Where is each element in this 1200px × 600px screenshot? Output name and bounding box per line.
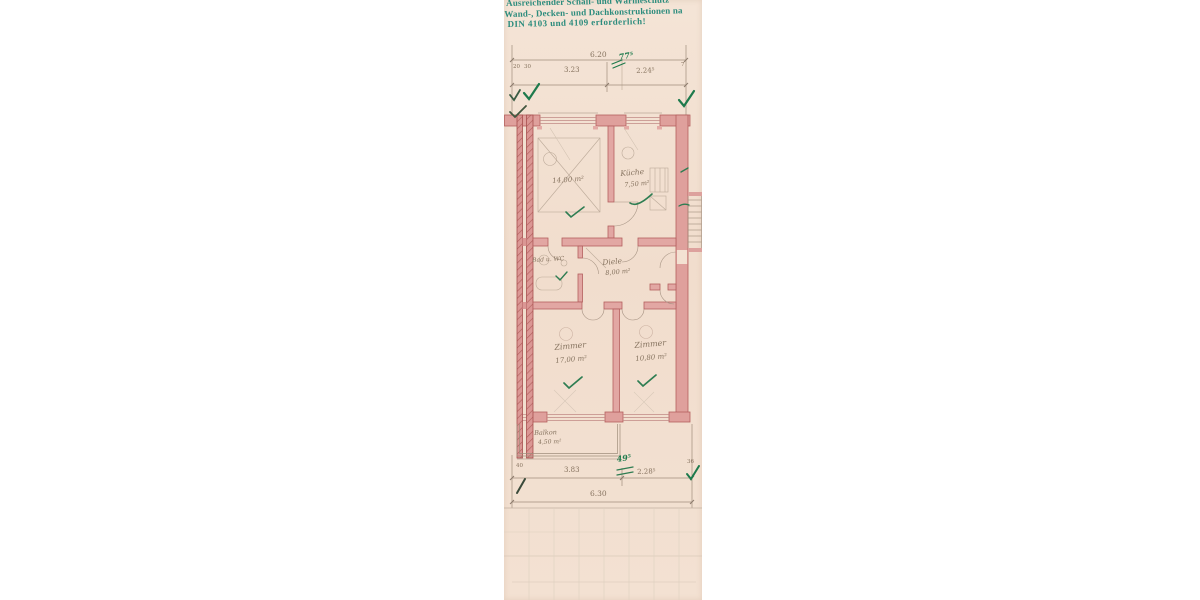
diele-name-label: Diele — [602, 256, 622, 267]
blueprint-paper: Ausreichender Schall- und Wärmeschutz Wa… — [504, 0, 702, 600]
floorplan-drawing — [504, 0, 702, 600]
dim-top-segment2: 2.24⁵ — [636, 66, 655, 75]
balkon-name-label: Balkon — [534, 428, 557, 437]
dim-bottom-overall: 6.30 — [590, 489, 607, 498]
balkon-area-label: 4,50 m² — [538, 438, 562, 446]
dim-top-overall: 6.20 — [590, 50, 607, 59]
green-note-bottom: 49⁵ — [616, 452, 632, 464]
dim-top-small-right: 7 — [681, 62, 685, 68]
party-wall — [517, 115, 533, 458]
faint-lower-lines — [504, 508, 702, 600]
dim-bottom-small-right: 36 — [687, 459, 694, 465]
staircase — [688, 192, 702, 252]
approval-stamp: Ausreichender Schall- und Wärmeschutz Wa… — [506, 0, 702, 29]
dim-top-segment1: 3.23 — [564, 66, 580, 74]
dim-bottom-segment1: 3.83 — [564, 466, 580, 474]
furniture — [536, 128, 668, 412]
scan-canvas: Ausreichender Schall- und Wärmeschutz Wa… — [0, 0, 1200, 600]
dim-bottom-small-left: 40 — [516, 463, 523, 469]
dim-top-small-2: 30 — [524, 64, 531, 70]
dim-bottom-segment2: 2.28⁵ — [637, 467, 656, 476]
dim-top-small-1: 20 — [513, 64, 520, 70]
